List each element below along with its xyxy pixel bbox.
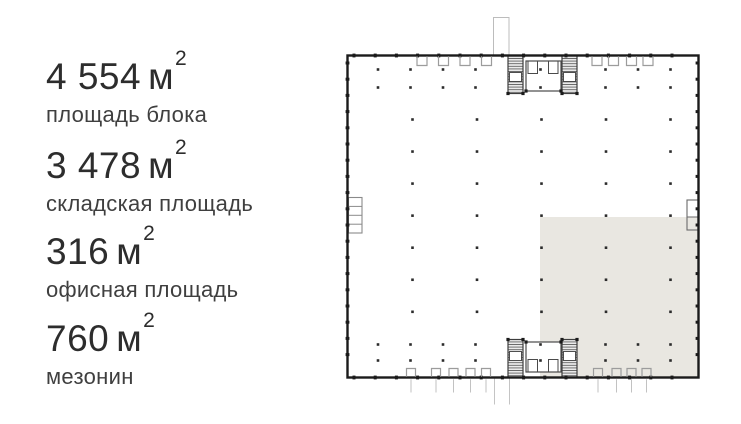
left-wall-annex <box>349 198 363 234</box>
stair-core-top <box>506 56 578 96</box>
entrance-axis-top <box>494 18 510 56</box>
stair-core-bottom <box>506 338 578 378</box>
floor-plan <box>0 0 741 424</box>
axis-lines-bottom <box>495 379 510 405</box>
slide: 4 554м2 площадь блока 3 478м2 складская … <box>0 0 741 424</box>
